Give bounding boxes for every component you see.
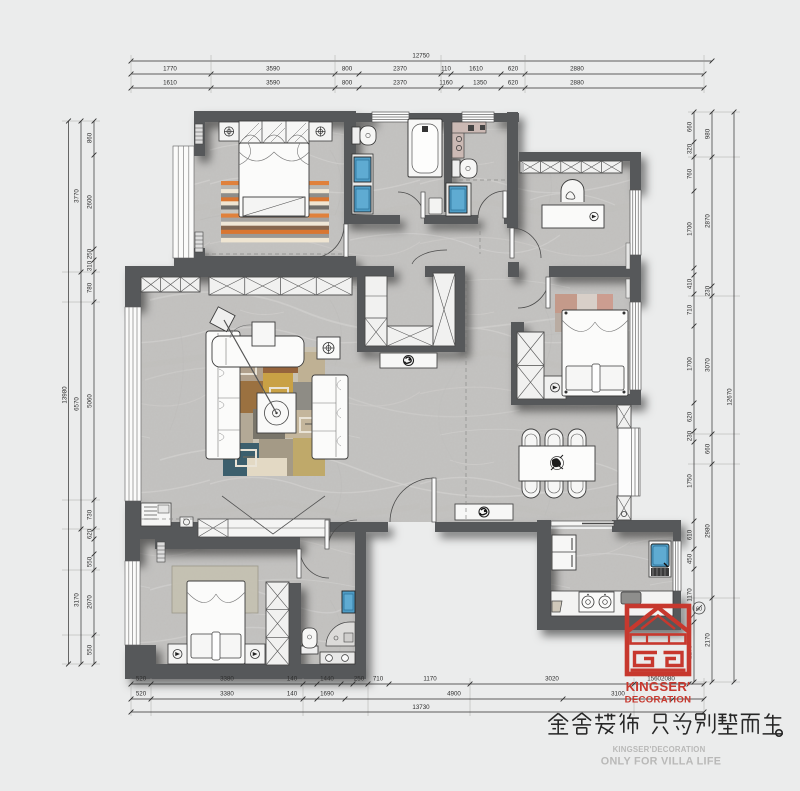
svg-text:2880: 2880 — [570, 80, 584, 87]
svg-text:2370: 2370 — [393, 66, 407, 73]
svg-text:13980: 13980 — [62, 386, 69, 404]
svg-text:5060: 5060 — [87, 394, 94, 408]
svg-text:3590: 3590 — [266, 66, 280, 73]
svg-text:1690: 1690 — [320, 691, 334, 698]
svg-text:3020: 3020 — [545, 676, 559, 683]
svg-text:2870: 2870 — [705, 214, 712, 228]
svg-text:2370: 2370 — [393, 80, 407, 87]
svg-text:550: 550 — [87, 644, 94, 655]
svg-text:2070: 2070 — [87, 595, 94, 609]
svg-text:550: 550 — [87, 556, 94, 567]
svg-text:1750: 1750 — [687, 474, 694, 488]
svg-text:520: 520 — [136, 676, 147, 683]
svg-text:1700: 1700 — [687, 222, 694, 236]
svg-text:KINGSER'DECORATION: KINGSER'DECORATION — [613, 745, 706, 754]
svg-text:2170: 2170 — [705, 633, 712, 647]
svg-text:13730: 13730 — [412, 704, 430, 711]
svg-text:230: 230 — [687, 430, 694, 441]
svg-text:ONLY FOR VILLA LIFE: ONLY FOR VILLA LIFE — [601, 756, 721, 768]
svg-text:710: 710 — [687, 304, 694, 315]
svg-text:800: 800 — [342, 80, 353, 87]
svg-text:620: 620 — [687, 411, 694, 422]
svg-text:310: 310 — [87, 260, 94, 271]
svg-text:860: 860 — [87, 132, 94, 143]
svg-text:3380: 3380 — [220, 691, 234, 698]
svg-text:1770: 1770 — [163, 66, 177, 73]
svg-text:620: 620 — [508, 66, 519, 73]
svg-text:4900: 4900 — [447, 691, 461, 698]
svg-text:KINGSER': KINGSER' — [626, 679, 691, 694]
svg-text:760: 760 — [687, 168, 694, 179]
svg-text:3770: 3770 — [74, 189, 81, 203]
svg-text:620: 620 — [87, 528, 94, 539]
svg-text:DECORATION: DECORATION — [625, 695, 692, 706]
svg-text:3170: 3170 — [74, 593, 81, 607]
svg-text:2880: 2880 — [570, 66, 584, 73]
svg-text:800: 800 — [342, 66, 353, 73]
svg-text:2980: 2980 — [705, 524, 712, 538]
svg-text:1170: 1170 — [687, 588, 694, 602]
svg-text:980: 980 — [705, 128, 712, 139]
svg-text:710: 710 — [373, 676, 384, 683]
svg-text:140: 140 — [287, 691, 298, 698]
svg-text:1350: 1350 — [473, 80, 487, 87]
svg-text:60: 60 — [696, 607, 702, 613]
svg-text:610: 610 — [687, 529, 694, 540]
svg-text:1610: 1610 — [469, 66, 483, 73]
svg-text:1440: 1440 — [320, 676, 334, 683]
svg-text:620: 620 — [508, 80, 519, 87]
svg-text:450: 450 — [687, 553, 694, 564]
svg-text:140: 140 — [287, 676, 298, 683]
svg-text:12750: 12750 — [412, 53, 430, 60]
svg-text:1610: 1610 — [163, 80, 177, 87]
svg-text:730: 730 — [87, 509, 94, 520]
svg-text:410: 410 — [687, 278, 694, 289]
svg-text:1170: 1170 — [423, 676, 437, 683]
svg-text:320: 320 — [687, 143, 694, 154]
svg-text:520: 520 — [136, 691, 147, 698]
svg-text:660: 660 — [687, 121, 694, 132]
svg-text:250: 250 — [87, 248, 94, 259]
svg-text:660: 660 — [705, 443, 712, 454]
svg-text:2600: 2600 — [87, 195, 94, 209]
svg-text:3590: 3590 — [266, 80, 280, 87]
svg-text:1700: 1700 — [687, 357, 694, 371]
svg-text:12670: 12670 — [727, 388, 734, 406]
svg-text:250: 250 — [354, 676, 365, 683]
svg-text:6570: 6570 — [74, 397, 81, 411]
svg-text:1160: 1160 — [439, 80, 453, 87]
svg-text:3100: 3100 — [611, 691, 625, 698]
svg-text:3070: 3070 — [705, 358, 712, 372]
svg-text:3380: 3380 — [220, 676, 234, 683]
svg-text:780: 780 — [87, 282, 94, 293]
svg-text:230: 230 — [705, 285, 712, 296]
svg-text:110: 110 — [441, 66, 451, 73]
